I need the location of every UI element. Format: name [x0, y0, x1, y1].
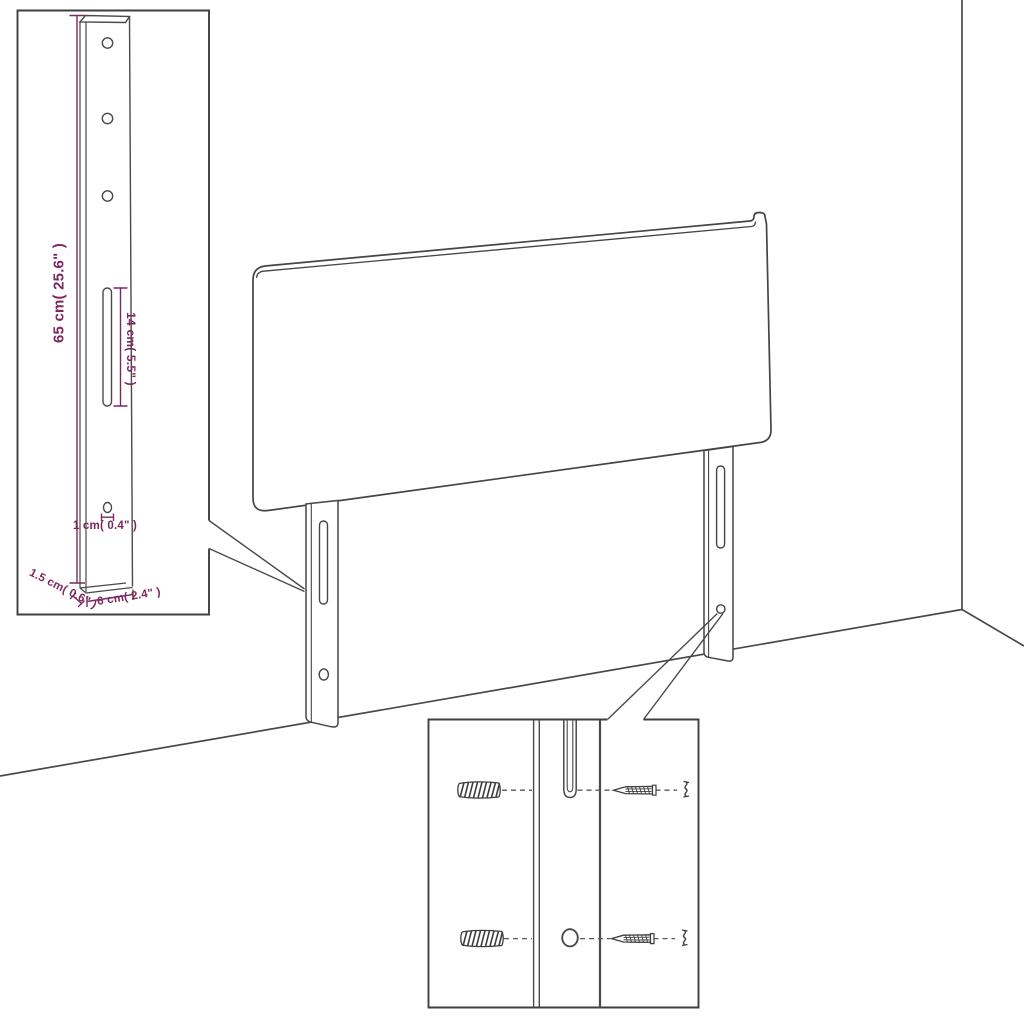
right-leg-hole — [717, 605, 725, 613]
right-leg-slot — [717, 466, 725, 548]
left-leg-slot — [320, 521, 328, 604]
left-leg-hole — [319, 669, 328, 680]
headboard-left-leg — [306, 501, 338, 728]
height-dimension-label: 65 cm( 25.6" ) — [51, 243, 68, 343]
headboard-panel — [253, 213, 771, 511]
headboard-front-face — [253, 213, 771, 511]
mounting-callout-line-right — [644, 614, 724, 720]
slot-dimension-label: 14 cm( 5.5" ) — [124, 312, 138, 386]
headboard-right-leg — [704, 447, 733, 662]
leg-detail-top-face — [80, 16, 130, 23]
hole-dimension-label: 1 cm( 0.4" ) — [73, 520, 137, 532]
mounting-detail-inset — [429, 614, 724, 1008]
floor-line-right — [962, 610, 1024, 647]
headboard-diagram — [0, 0, 1024, 1024]
mounting-callout-line-left — [608, 614, 718, 720]
diagram-canvas: 65 cm( 25.6" ) 14 cm( 5.5" ) 1 cm( 0.4" … — [0, 0, 1024, 1024]
